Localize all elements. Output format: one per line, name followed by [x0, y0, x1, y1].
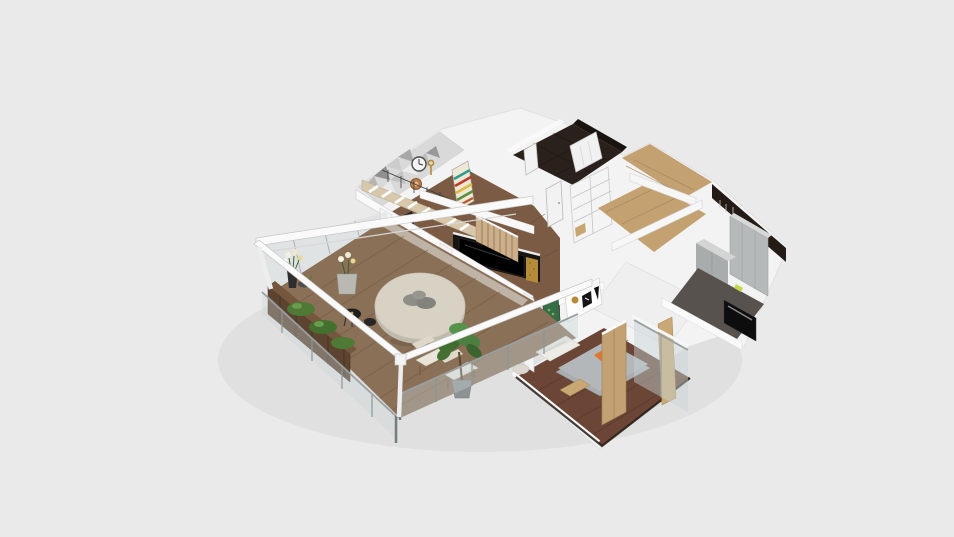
sun-art [572, 297, 579, 304]
design-viewport[interactable] [0, 0, 954, 537]
wall-clock-copper[interactable] [411, 179, 422, 190]
hedge-3 [331, 337, 355, 349]
door-knob [558, 202, 560, 204]
gold-panel-right [526, 257, 538, 283]
interior-door[interactable] [546, 181, 563, 227]
pergola-post-south [399, 364, 401, 417]
hedge-2 [309, 320, 337, 334]
hedge-1 [287, 302, 315, 316]
wall-clock-large[interactable] [412, 157, 426, 171]
wood-partition[interactable] [602, 321, 626, 425]
pergola-joint [395, 354, 406, 365]
